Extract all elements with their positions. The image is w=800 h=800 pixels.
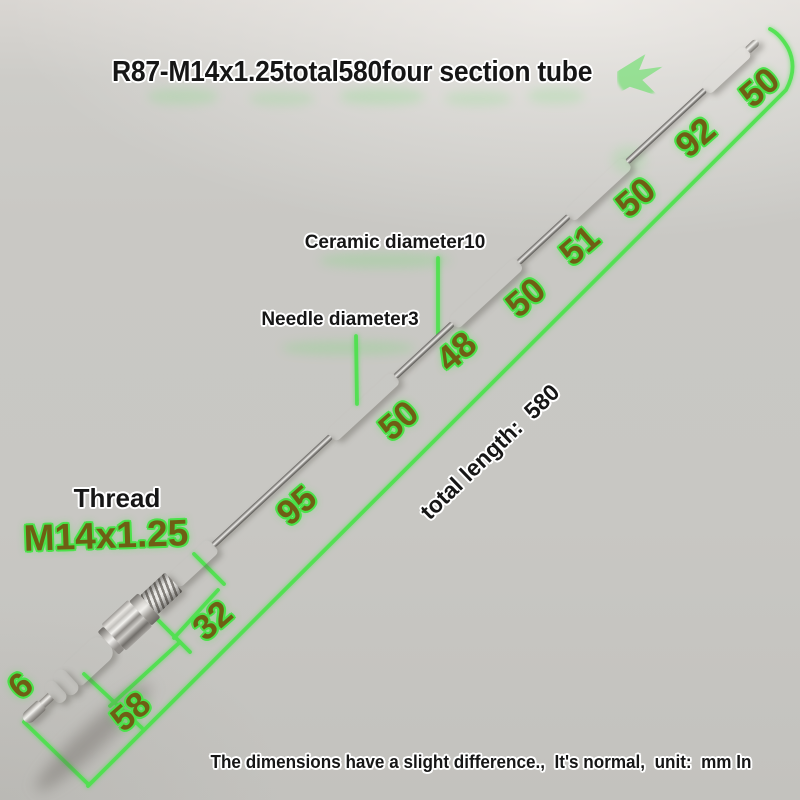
needle-diameter-callout: Needle diameter3 bbox=[261, 309, 418, 331]
thread-label: Thread bbox=[74, 483, 161, 514]
product-annotated-photo: R87-M14x1.25total580four section tube Ce… bbox=[0, 0, 800, 800]
note-text: The dimensions have a slight difference.… bbox=[211, 711, 752, 800]
note-line-1: The dimensions have a slight difference.… bbox=[211, 752, 752, 773]
page-title: R87-M14x1.25total580four section tube bbox=[112, 56, 592, 89]
thread-size-label: M14x1.25 bbox=[23, 512, 189, 560]
ceramic-diameter-callout: Ceramic diameter10 bbox=[305, 232, 486, 254]
